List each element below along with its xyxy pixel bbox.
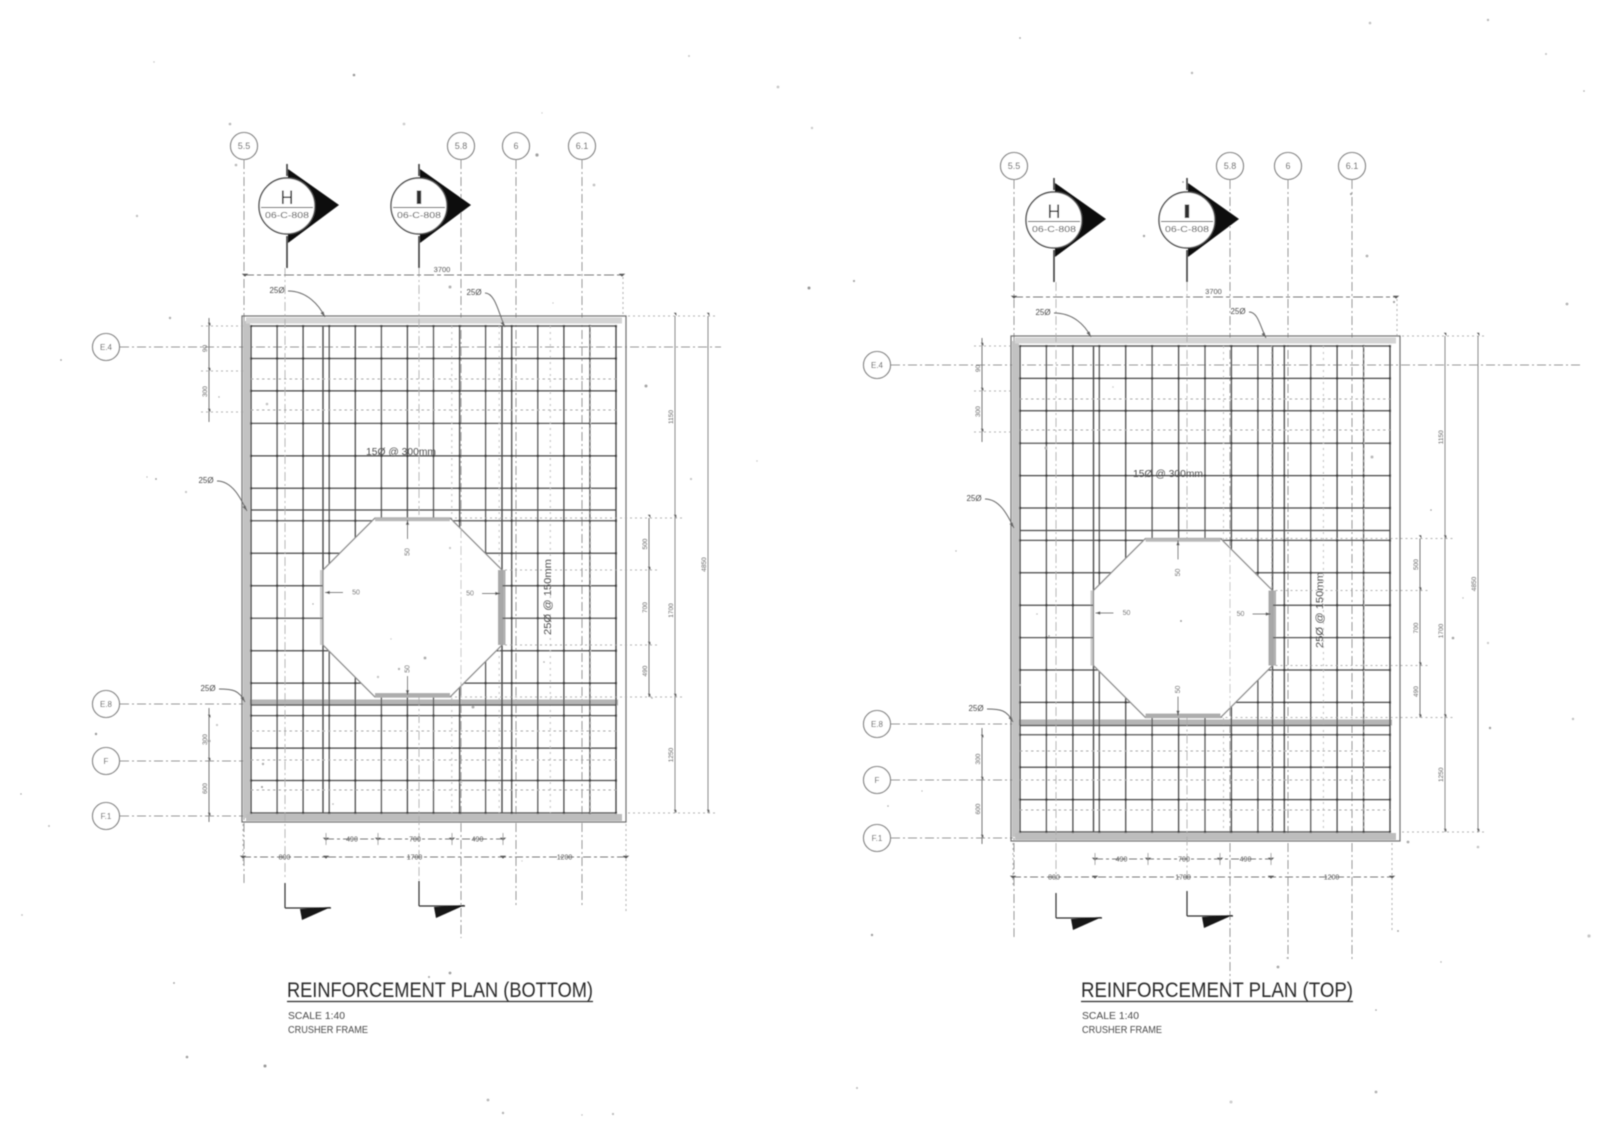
- svg-text:1700: 1700: [1175, 875, 1191, 882]
- svg-text:F.1: F.1: [101, 812, 112, 821]
- svg-text:5.5: 5.5: [238, 141, 251, 151]
- svg-text:06-C-808: 06-C-808: [397, 211, 442, 220]
- svg-text:490: 490: [1413, 686, 1420, 697]
- svg-text:6.1: 6.1: [1346, 161, 1359, 171]
- svg-text:600: 600: [975, 803, 982, 814]
- svg-text:15Ø @ 300mm: 15Ø @ 300mm: [366, 447, 436, 458]
- svg-text:25Ø: 25Ø: [198, 476, 213, 485]
- svg-text:600: 600: [202, 783, 209, 794]
- svg-text:REINFORCEMENT PLAN (TOP): REINFORCEMENT PLAN (TOP): [1081, 979, 1353, 1002]
- svg-text:50: 50: [1123, 610, 1131, 617]
- svg-text:490: 490: [1240, 857, 1252, 864]
- svg-text:90: 90: [202, 345, 209, 353]
- svg-text:F.1: F.1: [872, 834, 883, 843]
- svg-text:50: 50: [1237, 611, 1245, 618]
- svg-text:490: 490: [346, 837, 358, 844]
- svg-text:50: 50: [1175, 686, 1182, 694]
- svg-text:500: 500: [642, 538, 649, 549]
- svg-text:25Ø: 25Ø: [269, 286, 284, 295]
- svg-text:490: 490: [642, 665, 649, 676]
- svg-text:5.5: 5.5: [1008, 161, 1021, 171]
- svg-text:3700: 3700: [434, 265, 451, 274]
- svg-text:300: 300: [202, 386, 209, 397]
- svg-text:25Ø: 25Ø: [1230, 307, 1245, 316]
- svg-text:5.8: 5.8: [1224, 161, 1237, 171]
- svg-text:3700: 3700: [1205, 287, 1222, 296]
- svg-text:4850: 4850: [701, 557, 708, 572]
- svg-text:800: 800: [279, 855, 291, 862]
- svg-text:H: H: [281, 188, 294, 209]
- svg-text:490: 490: [472, 837, 484, 844]
- svg-text:1250: 1250: [668, 747, 675, 762]
- svg-text:CRUSHER FRAME: CRUSHER FRAME: [288, 1024, 368, 1036]
- svg-text:50: 50: [1175, 569, 1182, 577]
- svg-text:4850: 4850: [1471, 576, 1478, 591]
- svg-text:700: 700: [1178, 857, 1190, 864]
- svg-text:25Ø: 25Ø: [200, 684, 215, 693]
- svg-text:E.8: E.8: [871, 720, 884, 729]
- svg-text:700: 700: [1413, 622, 1420, 633]
- svg-text:500: 500: [1413, 559, 1420, 570]
- svg-text:H: H: [1048, 202, 1061, 223]
- svg-text:700: 700: [409, 837, 421, 844]
- svg-text:1700: 1700: [668, 603, 675, 618]
- svg-text:SCALE 1:40: SCALE 1:40: [1082, 1010, 1139, 1022]
- svg-text:50: 50: [352, 590, 360, 597]
- svg-text:E.8: E.8: [100, 700, 113, 709]
- svg-text:I: I: [413, 188, 426, 209]
- svg-text:5.8: 5.8: [455, 141, 468, 151]
- svg-text:1150: 1150: [668, 410, 675, 424]
- svg-text:REINFORCEMENT PLAN (BOTTOM): REINFORCEMENT PLAN (BOTTOM): [287, 979, 593, 1002]
- svg-text:6: 6: [513, 141, 518, 151]
- svg-text:50: 50: [466, 591, 474, 598]
- svg-text:1700: 1700: [407, 855, 423, 862]
- svg-text:800: 800: [1048, 875, 1060, 882]
- svg-text:06-C-808: 06-C-808: [1032, 225, 1077, 234]
- svg-text:F: F: [104, 757, 109, 766]
- svg-text:700: 700: [642, 602, 649, 613]
- svg-text:25Ø @ 150mm: 25Ø @ 150mm: [1315, 572, 1326, 648]
- svg-text:50: 50: [405, 665, 412, 673]
- svg-text:1200: 1200: [557, 855, 573, 862]
- svg-text:CRUSHER FRAME: CRUSHER FRAME: [1082, 1024, 1162, 1036]
- svg-text:6.1: 6.1: [576, 141, 589, 151]
- svg-text:1250: 1250: [1438, 767, 1445, 782]
- svg-text:300: 300: [975, 406, 982, 417]
- svg-text:25Ø: 25Ø: [966, 494, 981, 503]
- svg-text:490: 490: [1116, 857, 1128, 864]
- svg-text:90: 90: [975, 365, 982, 373]
- svg-text:25Ø: 25Ø: [1035, 308, 1050, 317]
- svg-text:25Ø: 25Ø: [968, 704, 983, 713]
- svg-text:300: 300: [202, 734, 209, 745]
- svg-text:25Ø: 25Ø: [466, 288, 481, 297]
- svg-text:F: F: [875, 776, 880, 785]
- svg-text:1700: 1700: [1438, 623, 1445, 638]
- svg-text:1150: 1150: [1438, 430, 1445, 444]
- svg-text:300: 300: [975, 753, 982, 764]
- svg-text:06-C-808: 06-C-808: [265, 211, 310, 220]
- svg-text:50: 50: [405, 548, 412, 556]
- svg-text:15Ø @ 300mm: 15Ø @ 300mm: [1133, 469, 1203, 480]
- svg-text:E.4: E.4: [871, 361, 884, 370]
- svg-text:6: 6: [1285, 161, 1290, 171]
- svg-text:25Ø @ 150mm: 25Ø @ 150mm: [543, 559, 554, 635]
- svg-text:1200: 1200: [1324, 875, 1340, 882]
- svg-text:SCALE 1:40: SCALE 1:40: [288, 1010, 345, 1022]
- svg-text:E.4: E.4: [100, 343, 113, 352]
- svg-text:06-C-808: 06-C-808: [1165, 225, 1210, 234]
- svg-text:I: I: [1181, 202, 1194, 223]
